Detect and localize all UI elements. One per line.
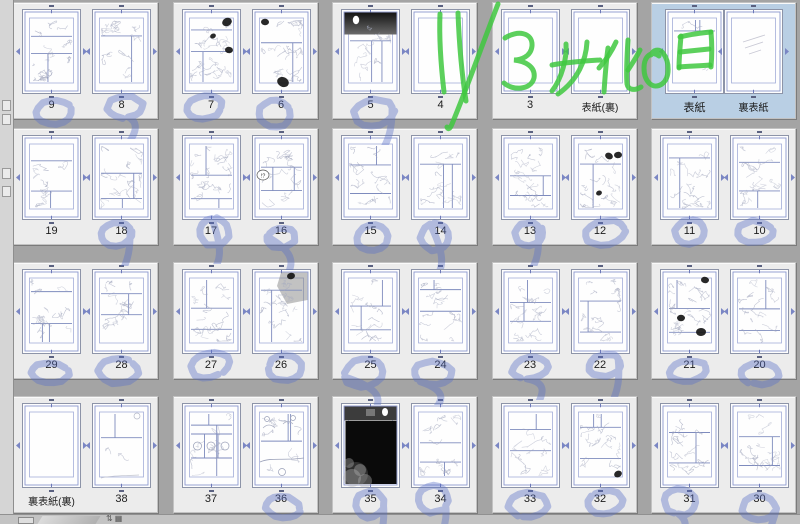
- page-number-label: 裏表紙: [714, 99, 793, 114]
- right-arrow-handle[interactable]: [472, 308, 476, 315]
- page-canvas[interactable]: [501, 9, 560, 94]
- top-handle-tick[interactable]: [49, 5, 54, 7]
- bottom-handle-tick[interactable]: [598, 490, 603, 492]
- page-number-label: 5: [331, 99, 410, 111]
- page-number-label: 25: [331, 359, 410, 371]
- left-arrow-handle[interactable]: [176, 48, 180, 55]
- top-handle-tick[interactable]: [687, 265, 692, 267]
- page-canvas[interactable]: [571, 269, 630, 354]
- page-spread-group-selected: 表紙 裏表紙: [651, 2, 796, 119]
- page-number-label: 32: [561, 493, 640, 505]
- page-canvas[interactable]: [182, 403, 241, 488]
- bottom-handle-tick[interactable]: [209, 222, 214, 224]
- top-handle-tick[interactable]: [119, 265, 124, 267]
- page-number-label: 3: [491, 99, 570, 111]
- page-thumbnail-3[interactable]: 3: [501, 9, 560, 109]
- right-arrow-handle[interactable]: [153, 442, 157, 449]
- page-canvas[interactable]: [252, 403, 311, 488]
- bottom-handle-tick[interactable]: [209, 96, 214, 98]
- page-thumbnail-28[interactable]: 28: [92, 269, 151, 369]
- bottom-handle-tick[interactable]: [751, 96, 756, 98]
- right-arrow-handle[interactable]: [632, 308, 636, 315]
- page-thumbnail-34[interactable]: 34: [411, 403, 470, 503]
- page-thumbnail-16[interactable]: !? 16: [252, 135, 311, 235]
- page-spread-group: 29 28: [13, 262, 158, 379]
- page-thumbnail-31[interactable]: 31: [660, 403, 719, 503]
- left-arrow-handle[interactable]: [246, 174, 250, 181]
- page-number-label: 4: [401, 99, 480, 111]
- left-arrow-handle[interactable]: [495, 174, 499, 181]
- bottom-handle-tick[interactable]: [757, 356, 762, 358]
- left-arrow-handle[interactable]: [176, 442, 180, 449]
- page-number-label: 26: [242, 359, 321, 371]
- left-arrow-handle[interactable]: [86, 442, 90, 449]
- bottom-handle-tick[interactable]: [692, 96, 697, 98]
- page-number-label: 6: [242, 99, 321, 111]
- bottom-handle-tick[interactable]: [209, 490, 214, 492]
- left-arrow-handle[interactable]: [654, 308, 658, 315]
- page-spread-group: 25 24: [332, 262, 477, 379]
- page-number-label: 16: [242, 225, 321, 237]
- page-number-label: 9: [12, 99, 91, 111]
- page-canvas[interactable]: [501, 269, 560, 354]
- page-canvas[interactable]: [730, 135, 789, 220]
- bottom-handle-tick[interactable]: [438, 356, 443, 358]
- page-number-label: 29: [12, 359, 91, 371]
- page-thumbnail-30[interactable]: 30: [730, 403, 789, 503]
- page-thumbnail-33[interactable]: 33: [501, 403, 560, 503]
- top-handle-tick[interactable]: [119, 131, 124, 133]
- top-handle-tick[interactable]: [209, 131, 214, 133]
- top-handle-tick[interactable]: [119, 399, 124, 401]
- page-canvas[interactable]: [571, 9, 630, 94]
- page-spread-group: 7 6: [173, 2, 318, 119]
- top-handle-tick[interactable]: [368, 265, 373, 267]
- page-thumbnail-15[interactable]: 15: [341, 135, 400, 235]
- bottom-handle-tick[interactable]: [757, 490, 762, 492]
- right-arrow-handle[interactable]: [632, 442, 636, 449]
- left-arrow-handle[interactable]: [246, 48, 250, 55]
- bottom-handle-tick[interactable]: [368, 356, 373, 358]
- page-number-label: 23: [491, 359, 570, 371]
- bottom-handle-tick[interactable]: [687, 490, 692, 492]
- left-arrow-handle[interactable]: [86, 48, 90, 55]
- page-thumbnail-6[interactable]: 6: [252, 9, 311, 109]
- page-number-label: 17: [172, 225, 251, 237]
- bottom-handle-tick[interactable]: [528, 222, 533, 224]
- bottom-handle-tick[interactable]: [528, 490, 533, 492]
- page-number-label: 7: [172, 99, 251, 111]
- left-arrow-handle[interactable]: [724, 174, 728, 181]
- page-canvas[interactable]: [501, 403, 560, 488]
- page-canvas[interactable]: [92, 403, 151, 488]
- bottom-handle-tick[interactable]: [49, 96, 54, 98]
- bottom-handle-tick[interactable]: [119, 222, 124, 224]
- page-canvas[interactable]: [411, 269, 470, 354]
- top-handle-tick[interactable]: [209, 265, 214, 267]
- page-thumbnail-14[interactable]: 14: [411, 135, 470, 235]
- page-thumbnail-7[interactable]: 7: [182, 9, 241, 109]
- page-thumbnail-38[interactable]: 38: [92, 403, 151, 503]
- page-number-label: 10: [720, 225, 799, 237]
- right-arrow-handle[interactable]: [472, 174, 476, 181]
- top-handle-tick[interactable]: [757, 399, 762, 401]
- left-arrow-handle[interactable]: [405, 174, 409, 181]
- page-number-label: 35: [331, 493, 410, 505]
- left-arrow-handle[interactable]: [86, 174, 90, 181]
- top-handle-tick[interactable]: [751, 5, 756, 7]
- top-handle-tick[interactable]: [528, 265, 533, 267]
- left-arrow-handle[interactable]: [176, 308, 180, 315]
- top-handle-tick[interactable]: [209, 399, 214, 401]
- page-canvas[interactable]: [22, 135, 81, 220]
- page-canvas[interactable]: [571, 403, 630, 488]
- page-canvas[interactable]: [341, 403, 400, 488]
- bottom-handle-tick[interactable]: [279, 490, 284, 492]
- page-number-label: 33: [491, 493, 570, 505]
- page-canvas[interactable]: [182, 135, 241, 220]
- page-thumbnail-裏表紙(裏)[interactable]: 裏表紙(裏): [22, 403, 81, 503]
- page-number-label: 27: [172, 359, 251, 371]
- right-arrow-handle[interactable]: [472, 442, 476, 449]
- left-arrow-handle[interactable]: [176, 174, 180, 181]
- sort-grid-icons[interactable]: ⇅▦: [106, 514, 124, 523]
- left-arrow-handle[interactable]: [16, 48, 20, 55]
- page-canvas[interactable]: [730, 269, 789, 354]
- page-spread-group: 13 12: [492, 128, 637, 245]
- right-arrow-handle[interactable]: [632, 174, 636, 181]
- page-canvas[interactable]: [730, 403, 789, 488]
- bottom-handle-tick[interactable]: [49, 222, 54, 224]
- page-spread-group: 19 18: [13, 128, 158, 245]
- palette-page-icon[interactable]: [2, 100, 11, 111]
- page-number-label: 36: [242, 493, 321, 505]
- left-arrow-handle[interactable]: [495, 48, 499, 55]
- top-handle-tick[interactable]: [598, 5, 603, 7]
- left-arrow-handle[interactable]: [16, 308, 20, 315]
- left-arrow-handle[interactable]: [565, 442, 569, 449]
- palette-tool-icon[interactable]: [2, 186, 11, 197]
- page-canvas[interactable]: [501, 135, 560, 220]
- left-arrow-handle[interactable]: [246, 308, 250, 315]
- left-arrow-handle[interactable]: [16, 174, 20, 181]
- page-number-label: 34: [401, 493, 480, 505]
- top-handle-tick[interactable]: [692, 5, 697, 7]
- page-thumbnail-26[interactable]: 26: [252, 269, 311, 369]
- bottom-handle-tick[interactable]: [119, 356, 124, 358]
- page-spread-group: 17 !? 16: [173, 128, 318, 245]
- right-arrow-handle[interactable]: [153, 174, 157, 181]
- page-number-label: 18: [82, 225, 161, 237]
- page-number-label: 裏表紙(裏): [12, 493, 91, 508]
- right-arrow-handle[interactable]: [785, 48, 789, 55]
- page-thumbnail-19[interactable]: 19: [22, 135, 81, 235]
- right-arrow-handle[interactable]: [791, 174, 795, 181]
- page-number-label: 37: [172, 493, 251, 505]
- page-thumbnail-11[interactable]: 11: [660, 135, 719, 235]
- top-handle-tick[interactable]: [279, 131, 284, 133]
- page-canvas[interactable]: [22, 269, 81, 354]
- page-canvas[interactable]: [665, 9, 724, 94]
- page-number-label: 8: [82, 99, 161, 111]
- left-arrow-handle[interactable]: [405, 48, 409, 55]
- right-arrow-handle[interactable]: [153, 48, 157, 55]
- bottom-handle-tick[interactable]: [368, 222, 373, 224]
- left-arrow-handle[interactable]: [495, 442, 499, 449]
- page-manager-window: 9 8 7 6 5 4: [0, 0, 800, 524]
- page-spread-group: 37 36: [173, 396, 318, 513]
- page-thumbnail-17[interactable]: 17: [182, 135, 241, 235]
- page-canvas[interactable]: [660, 135, 719, 220]
- page-spread-group: 31 30: [651, 396, 796, 513]
- page-thumbnail-36[interactable]: 36: [252, 403, 311, 503]
- top-handle-tick[interactable]: [687, 131, 692, 133]
- top-handle-tick[interactable]: [757, 131, 762, 133]
- page-thumbnail-35[interactable]: 35: [341, 403, 400, 503]
- top-handle-tick[interactable]: [49, 399, 54, 401]
- bottom-handle-tick[interactable]: [687, 356, 692, 358]
- right-arrow-handle[interactable]: [313, 308, 317, 315]
- bottom-handle-tick[interactable]: [119, 490, 124, 492]
- left-palette-strip: [0, 0, 14, 524]
- left-arrow-handle[interactable]: [246, 442, 250, 449]
- page-spread-group: 27 26: [173, 262, 318, 379]
- bottom-handle-tick[interactable]: [279, 222, 284, 224]
- page-number-label: 表紙(裏): [561, 99, 640, 114]
- page-thumbnail-12[interactable]: 12: [571, 135, 630, 235]
- page-thumbnail-裏表紙[interactable]: 裏表紙: [724, 9, 783, 109]
- top-handle-tick[interactable]: [598, 265, 603, 267]
- right-arrow-handle[interactable]: [791, 442, 795, 449]
- top-handle-tick[interactable]: [368, 399, 373, 401]
- page-canvas[interactable]: [22, 403, 81, 488]
- bottom-handle-tick[interactable]: [598, 96, 603, 98]
- left-arrow-handle[interactable]: [335, 48, 339, 55]
- left-arrow-handle[interactable]: [654, 442, 658, 449]
- right-arrow-handle[interactable]: [313, 442, 317, 449]
- page-number-label: 22: [561, 359, 640, 371]
- page-thumbnail-21[interactable]: 21: [660, 269, 719, 369]
- page-thumbnail-表紙(裏)[interactable]: 表紙(裏): [571, 9, 630, 109]
- page-canvas[interactable]: [92, 9, 151, 94]
- page-spread-group: 9 8: [13, 2, 158, 119]
- top-handle-tick[interactable]: [49, 265, 54, 267]
- left-arrow-handle[interactable]: [495, 308, 499, 315]
- page-canvas[interactable]: [341, 135, 400, 220]
- page-number-label: 12: [561, 225, 640, 237]
- bottom-handle-tick[interactable]: [528, 356, 533, 358]
- page-number-label: 38: [82, 493, 161, 505]
- page-thumbnail-32[interactable]: 32: [571, 403, 630, 503]
- page-thumbnail-9[interactable]: 9: [22, 9, 81, 109]
- left-arrow-handle[interactable]: [659, 48, 663, 55]
- top-handle-tick[interactable]: [438, 265, 443, 267]
- page-thumbnail-27[interactable]: 27: [182, 269, 241, 369]
- bottom-handle-tick[interactable]: [598, 222, 603, 224]
- page-canvas[interactable]: [252, 269, 311, 354]
- page-canvas[interactable]: [724, 9, 783, 94]
- left-arrow-handle[interactable]: [724, 442, 728, 449]
- top-handle-tick[interactable]: [438, 5, 443, 7]
- right-arrow-handle[interactable]: [313, 48, 317, 55]
- page-spread-group: 3 表紙(裏): [492, 2, 637, 119]
- page-number-label: 24: [401, 359, 480, 371]
- left-arrow-handle[interactable]: [565, 48, 569, 55]
- top-handle-tick[interactable]: [279, 265, 284, 267]
- page-thumbnail-5[interactable]: 5: [341, 9, 400, 109]
- page-thumbnail-22[interactable]: 22: [571, 269, 630, 369]
- page-canvas[interactable]: [182, 9, 241, 94]
- right-arrow-handle[interactable]: [153, 308, 157, 315]
- bottom-handle-tick[interactable]: [49, 490, 54, 492]
- top-handle-tick[interactable]: [598, 131, 603, 133]
- bottom-handle-tick[interactable]: [528, 96, 533, 98]
- top-handle-tick[interactable]: [528, 5, 533, 7]
- page-thumbnail-29[interactable]: 29: [22, 269, 81, 369]
- top-handle-tick[interactable]: [49, 131, 54, 133]
- page-spread-group: 33 32: [492, 396, 637, 513]
- bottom-handle-tick[interactable]: [438, 222, 443, 224]
- palette-check-icon[interactable]: [2, 168, 11, 179]
- top-handle-tick[interactable]: [687, 399, 692, 401]
- page-thumbnail-10[interactable]: 10: [730, 135, 789, 235]
- page-canvas[interactable]: [660, 403, 719, 488]
- page-spread-group: 11 10: [651, 128, 796, 245]
- top-handle-tick[interactable]: [368, 131, 373, 133]
- page-canvas[interactable]: [411, 9, 470, 94]
- left-arrow-handle[interactable]: [724, 308, 728, 315]
- page-thumbnail-8[interactable]: 8: [92, 9, 151, 109]
- bottom-handle-tick[interactable]: [598, 356, 603, 358]
- left-arrow-handle[interactable]: [565, 174, 569, 181]
- page-thumbnail-23[interactable]: 23: [501, 269, 560, 369]
- bar-sheen-decoration: [38, 516, 101, 524]
- page-number-label: 14: [401, 225, 480, 237]
- page-number-label: 20: [720, 359, 799, 371]
- left-arrow-handle[interactable]: [335, 174, 339, 181]
- page-number-label: 21: [650, 359, 729, 371]
- right-arrow-handle[interactable]: [632, 48, 636, 55]
- page-canvas[interactable]: !?: [252, 135, 311, 220]
- page-canvas[interactable]: [411, 135, 470, 220]
- page-spread-group: 裏表紙(裏) 38: [13, 396, 158, 513]
- bottom-handle-tick[interactable]: [687, 222, 692, 224]
- top-handle-tick[interactable]: [528, 399, 533, 401]
- page-thumbnail-13[interactable]: 13: [501, 135, 560, 235]
- top-handle-tick[interactable]: [528, 131, 533, 133]
- corner-resize-button[interactable]: [18, 517, 34, 524]
- page-canvas[interactable]: [92, 269, 151, 354]
- right-arrow-handle[interactable]: [313, 174, 317, 181]
- page-spread-group: 35 34: [332, 396, 477, 513]
- top-handle-tick[interactable]: [757, 265, 762, 267]
- page-number-label: 13: [491, 225, 570, 237]
- bottom-handle-tick[interactable]: [279, 356, 284, 358]
- left-arrow-handle[interactable]: [405, 442, 409, 449]
- left-arrow-handle[interactable]: [335, 442, 339, 449]
- page-number-label: 19: [12, 225, 91, 237]
- page-thumbnail-18[interactable]: 18: [92, 135, 151, 235]
- top-handle-tick[interactable]: [438, 131, 443, 133]
- bottom-handle-tick[interactable]: [368, 96, 373, 98]
- svg-text:!?: !?: [260, 174, 265, 180]
- page-canvas[interactable]: [22, 9, 81, 94]
- top-handle-tick[interactable]: [279, 5, 284, 7]
- bottom-handle-tick[interactable]: [279, 96, 284, 98]
- page-thumbnail-20[interactable]: 20: [730, 269, 789, 369]
- top-handle-tick[interactable]: [209, 5, 214, 7]
- page-canvas[interactable]: [660, 269, 719, 354]
- bottom-handle-tick[interactable]: [49, 356, 54, 358]
- top-handle-tick[interactable]: [598, 399, 603, 401]
- page-spread-group: 5 4: [332, 2, 477, 119]
- left-arrow-handle[interactable]: [16, 442, 20, 449]
- bottom-handle-tick[interactable]: [209, 356, 214, 358]
- page-number-label: 30: [720, 493, 799, 505]
- right-arrow-handle[interactable]: [472, 48, 476, 55]
- page-spread-group: 23 22: [492, 262, 637, 379]
- page-thumbnail-4[interactable]: 4: [411, 9, 470, 109]
- page-canvas[interactable]: [182, 269, 241, 354]
- palette-doc-icon[interactable]: [2, 114, 11, 125]
- page-number-label: 11: [650, 225, 729, 237]
- bottom-handle-tick[interactable]: [757, 222, 762, 224]
- left-arrow-handle[interactable]: [718, 48, 722, 55]
- page-thumbnail-25[interactable]: 25: [341, 269, 400, 369]
- top-handle-tick[interactable]: [119, 5, 124, 7]
- page-number-label: 28: [82, 359, 161, 371]
- bottom-window-bar: ⇅▦: [0, 514, 800, 524]
- page-spread-group: 15 14: [332, 128, 477, 245]
- page-canvas[interactable]: [411, 403, 470, 488]
- page-canvas[interactable]: [571, 135, 630, 220]
- left-arrow-handle[interactable]: [86, 308, 90, 315]
- page-canvas[interactable]: [341, 9, 400, 94]
- top-handle-tick[interactable]: [438, 399, 443, 401]
- page-number-label: 31: [650, 493, 729, 505]
- right-arrow-handle[interactable]: [791, 308, 795, 315]
- page-spread-group: 21 20: [651, 262, 796, 379]
- page-canvas[interactable]: [341, 269, 400, 354]
- left-arrow-handle[interactable]: [405, 308, 409, 315]
- left-arrow-handle[interactable]: [565, 308, 569, 315]
- bottom-handle-tick[interactable]: [119, 96, 124, 98]
- left-arrow-handle[interactable]: [335, 308, 339, 315]
- bottom-handle-tick[interactable]: [438, 96, 443, 98]
- page-canvas[interactable]: [92, 135, 151, 220]
- page-thumbnail-表紙[interactable]: 表紙: [665, 9, 724, 109]
- left-arrow-handle[interactable]: [654, 174, 658, 181]
- bottom-handle-tick[interactable]: [368, 490, 373, 492]
- page-canvas[interactable]: [252, 9, 311, 94]
- top-handle-tick[interactable]: [368, 5, 373, 7]
- page-number-label: 15: [331, 225, 410, 237]
- bottom-handle-tick[interactable]: [438, 490, 443, 492]
- page-thumbnail-24[interactable]: 24: [411, 269, 470, 369]
- top-handle-tick[interactable]: [279, 399, 284, 401]
- page-thumbnail-37[interactable]: 37: [182, 403, 241, 503]
